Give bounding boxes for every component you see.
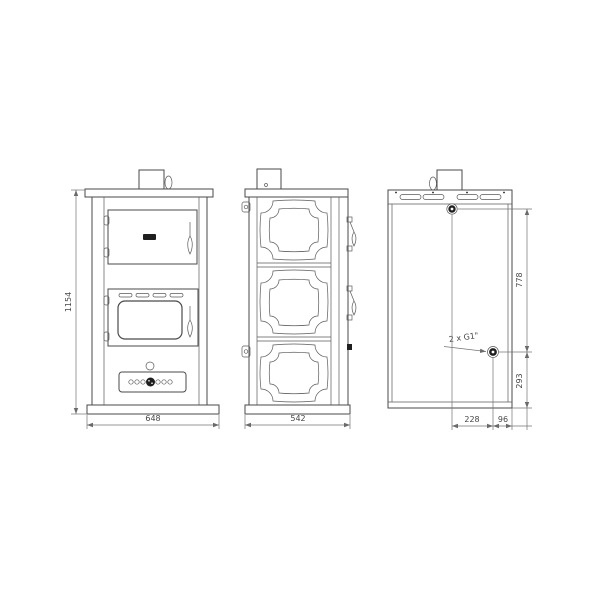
leader-line bbox=[444, 347, 486, 352]
dim-depth-label: 542 bbox=[290, 414, 305, 423]
screw-dot bbox=[503, 192, 505, 194]
cartouche-inner bbox=[269, 352, 319, 394]
side-body bbox=[249, 197, 348, 405]
vent-slot bbox=[119, 294, 132, 298]
side-top-plate bbox=[245, 189, 348, 197]
connection-note-label: 2 x G1" bbox=[448, 331, 479, 344]
upper-door-handle bbox=[188, 236, 193, 254]
fire-door-handle bbox=[188, 320, 193, 337]
latch-handle bbox=[352, 301, 356, 315]
screw-dot bbox=[432, 192, 434, 194]
grille-hole bbox=[156, 380, 160, 384]
brand-logo-plate bbox=[143, 234, 156, 240]
upper-water-connection bbox=[447, 204, 457, 214]
side-chimney-screw bbox=[265, 184, 268, 187]
ornament-panel-middle bbox=[260, 270, 328, 334]
latch-rod bbox=[350, 291, 354, 301]
grille-hole bbox=[129, 380, 133, 384]
connection-bore bbox=[492, 351, 495, 354]
cartouche-outer bbox=[260, 200, 328, 260]
side-air-knob bbox=[347, 344, 352, 350]
back-chimney bbox=[437, 170, 462, 190]
grille-hole bbox=[162, 380, 166, 384]
front-view: 1154 648 bbox=[64, 170, 219, 429]
vent-slot bbox=[136, 294, 149, 298]
dim-overall-depth: 542 bbox=[245, 414, 350, 429]
dim-connection-offsets: 228 96 bbox=[452, 214, 532, 430]
dim-connection-heights: 778 293 bbox=[458, 209, 532, 430]
side-view: 542 bbox=[242, 169, 356, 429]
dim-width-label: 648 bbox=[145, 414, 160, 423]
front-chimney bbox=[139, 170, 164, 189]
connection-annotation: 2 x G1" bbox=[444, 331, 486, 352]
cooling-slot bbox=[480, 195, 501, 200]
upper-door bbox=[104, 210, 197, 264]
lower-water-connection bbox=[488, 347, 499, 358]
back-body bbox=[388, 190, 512, 408]
dim-connection-vertical-label: 778 bbox=[515, 272, 524, 287]
latch-handle bbox=[352, 232, 356, 246]
ash-section bbox=[119, 362, 186, 392]
screw-dot bbox=[466, 192, 468, 194]
cartouche-inner bbox=[269, 279, 319, 326]
hinge-pin-hole bbox=[244, 205, 248, 209]
cooling-slot bbox=[400, 195, 421, 200]
cooling-slot bbox=[457, 195, 478, 200]
back-vent-slots bbox=[395, 192, 505, 200]
dim-height-label: 1154 bbox=[64, 292, 73, 312]
grille-center-rosette bbox=[146, 378, 155, 387]
cartouche-outer bbox=[260, 344, 328, 402]
air-regulator-knob bbox=[146, 362, 154, 370]
dim-edge-offset-label: 96 bbox=[498, 415, 508, 424]
front-top-plate bbox=[85, 189, 213, 197]
ornament-panel-bottom bbox=[260, 344, 328, 402]
vent-slot bbox=[153, 294, 166, 298]
back-thermostat-knob bbox=[430, 177, 437, 190]
dim-connection-offset-label: 228 bbox=[464, 415, 479, 424]
grille-hole bbox=[168, 380, 172, 384]
dim-overall-width: 648 bbox=[87, 414, 219, 429]
technical-drawing-canvas: 1154 648 bbox=[0, 0, 600, 600]
screw-dot bbox=[395, 192, 397, 194]
fire-door bbox=[104, 289, 198, 346]
grille-hole bbox=[135, 380, 139, 384]
latch-rod bbox=[350, 222, 354, 232]
hinge-pin-hole bbox=[244, 350, 248, 354]
stove-three-view-drawing: 1154 648 bbox=[0, 0, 600, 600]
cooling-slot bbox=[423, 195, 444, 200]
door-glass-window bbox=[118, 301, 182, 339]
side-chimney bbox=[257, 169, 281, 189]
dim-lower-connection-label: 293 bbox=[515, 373, 524, 388]
rosette-dot bbox=[148, 380, 150, 382]
side-base bbox=[245, 405, 350, 414]
connection-bore bbox=[451, 208, 454, 211]
ornament-panel-top bbox=[260, 200, 328, 260]
cartouche-inner bbox=[269, 208, 319, 252]
dim-overall-height: 1154 bbox=[64, 190, 87, 414]
vent-slot bbox=[170, 294, 183, 298]
front-thermostat-knob bbox=[165, 176, 172, 189]
front-base bbox=[87, 405, 219, 414]
grille-hole bbox=[141, 380, 145, 384]
back-view: 2 x G1" 778 293 228 96 bbox=[388, 170, 532, 430]
rosette-dot bbox=[151, 382, 153, 384]
